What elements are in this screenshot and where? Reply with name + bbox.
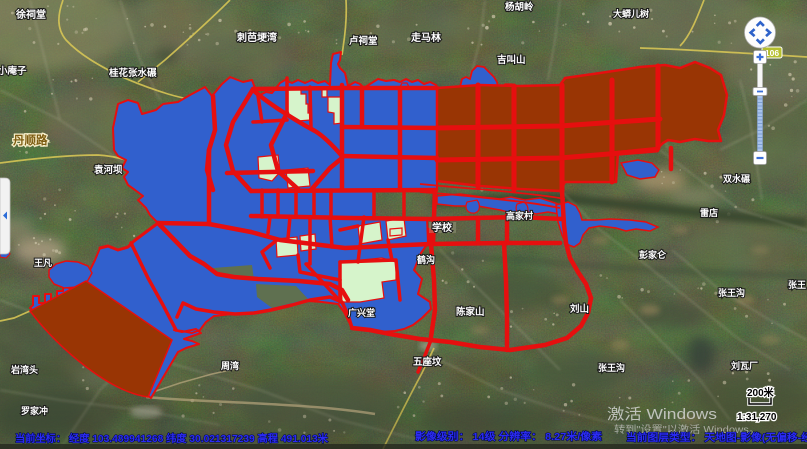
svg-text:罗家冲: 罗家冲 [21,405,48,416]
svg-text:学校: 学校 [432,221,453,234]
svg-text:高家村: 高家村 [506,210,533,221]
svg-text:当前图层类型： 天地图-影像(无偏移-经: 当前图层类型： 天地图-影像(无偏移-经 [626,431,807,444]
svg-text:卢祠堂: 卢祠堂 [349,35,378,47]
svg-text:张王沟: 张王沟 [718,287,745,298]
svg-text:鹤沟: 鹤沟 [417,254,435,265]
svg-text:五座坟: 五座坟 [413,356,442,368]
svg-text:200米: 200米 [747,386,775,399]
svg-text:刘瓦厂: 刘瓦厂 [731,360,758,371]
svg-text:岩湾头: 岩湾头 [10,364,38,375]
svg-text:大蟒儿树: 大蟒儿树 [613,8,649,19]
svg-text:小庵子: 小庵子 [0,65,27,77]
svg-text:刺芭埂湾: 刺芭埂湾 [236,31,277,44]
svg-text:雷店: 雷店 [700,207,718,218]
svg-text:1:31,270: 1:31,270 [737,412,777,423]
svg-text:张王沟: 张王沟 [598,362,625,373]
svg-text:吉叫山: 吉叫山 [497,54,526,66]
svg-text:王凡: 王凡 [34,258,52,268]
svg-text:影像级别： 14级 分辨率： 8.27米/像素: 影像级别： 14级 分辨率： 8.27米/像素 [415,430,602,443]
svg-text:桂花张水碾: 桂花张水碾 [108,67,157,79]
svg-text:当前坐标： 经度 103.489941268 纬度 30.0: 当前坐标： 经度 103.489941268 纬度 30.021317239 高… [15,432,329,445]
svg-text:杨胡岭: 杨胡岭 [505,1,534,13]
svg-text:广兴堂: 广兴堂 [348,307,375,318]
svg-text:刘山: 刘山 [570,303,589,315]
svg-text:走马林: 走马林 [410,31,442,44]
svg-text:徐祠堂: 徐祠堂 [15,8,46,21]
svg-text:106: 106 [765,48,779,58]
svg-text:陈家山: 陈家山 [456,306,485,318]
svg-text:丹顺路: 丹顺路 [13,133,48,147]
svg-text:双水碾: 双水碾 [723,173,751,184]
svg-text:周湾: 周湾 [221,360,239,371]
svg-text:袁河坝: 袁河坝 [93,164,123,176]
svg-text:彭家仑: 彭家仑 [639,249,667,260]
svg-text:张王: 张王 [788,279,806,290]
svg-text:激活 Windows: 激活 Windows [607,406,717,423]
